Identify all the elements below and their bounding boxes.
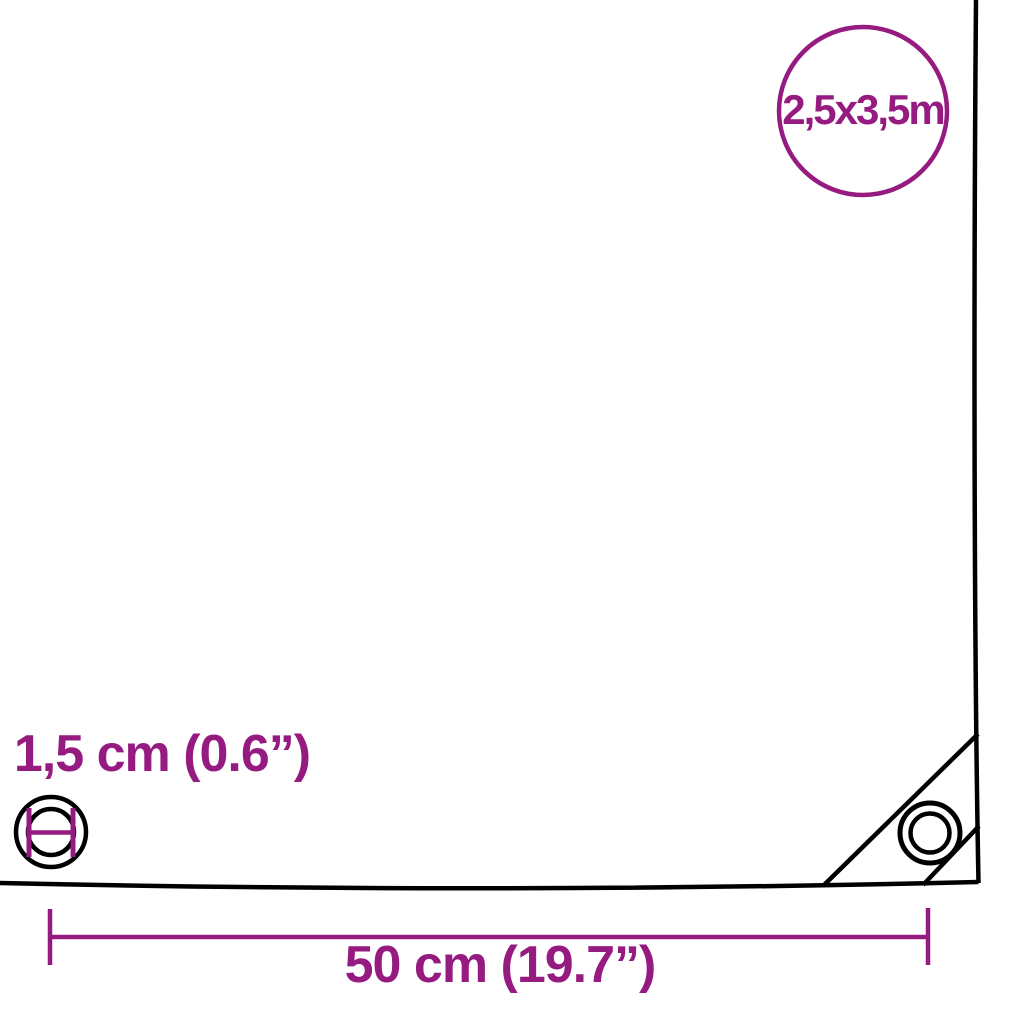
tarp-right-edge: [975, 0, 979, 883]
eyelet-spacing-label: 50 cm (19.7”): [300, 939, 700, 991]
corner-reinforcement: [823, 734, 979, 886]
eyelet-diameter-label: 1,5 cm (0.6”): [0, 728, 324, 780]
eyelet-icon: [900, 803, 960, 863]
product-dimension-diagram: 2,5x3,5m 1,5 cm (0.6”) 50 cm (19.7”): [0, 0, 1024, 1024]
diagram-canvas: [0, 0, 1024, 1024]
eyelet-diameter-icon: [16, 797, 86, 867]
size-badge-label: 2,5x3,5m: [763, 89, 963, 131]
eyelet-inner-ring: [911, 814, 950, 853]
tarp-bottom-edge: [0, 882, 979, 888]
corner-seam-long-diagonal: [823, 734, 978, 886]
